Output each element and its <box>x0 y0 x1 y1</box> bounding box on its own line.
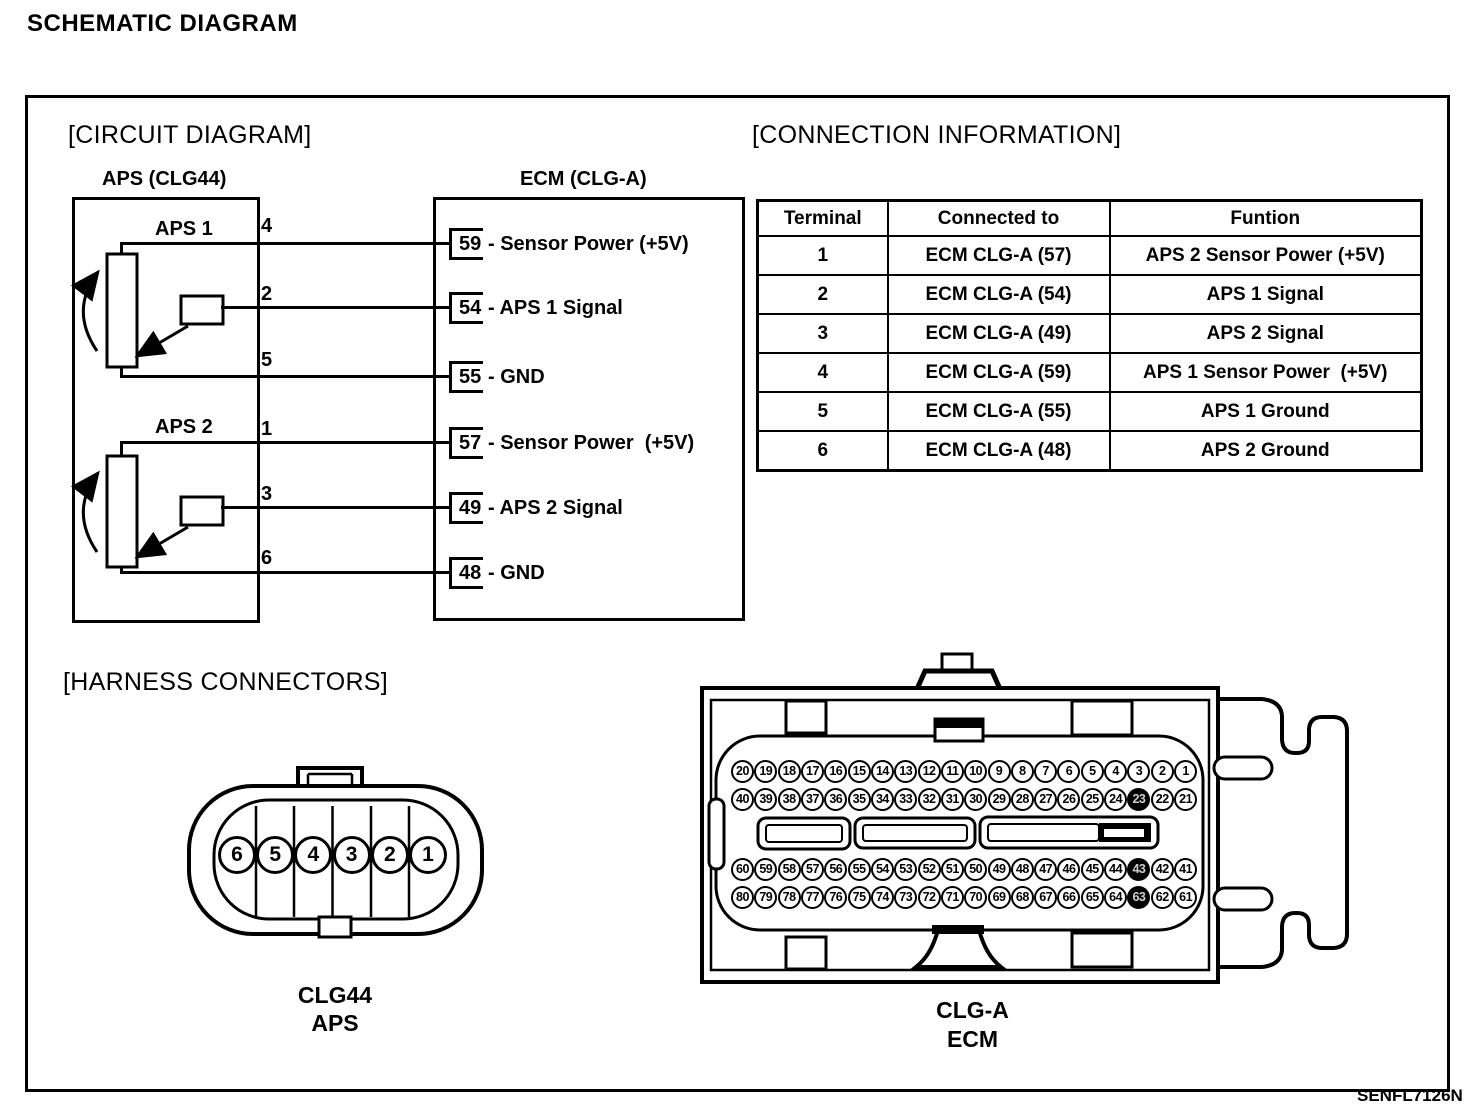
clga-pin-50: 50 <box>964 858 987 881</box>
ecm-pin-bracket: 49 <box>449 492 483 524</box>
col-function: Funtion <box>1110 201 1422 237</box>
clga-pin-34: 34 <box>871 788 894 811</box>
ecm-pin-function: - GND <box>488 557 545 589</box>
wire-aps1-power <box>120 242 452 245</box>
table-row: 6 ECM CLG-A (48) APS 2 Ground <box>758 431 1422 471</box>
clga-pin-39: 39 <box>754 788 777 811</box>
aps-pin-number: 5 <box>261 349 272 372</box>
connection-information-section-title: [CONNECTION INFORMATION] <box>752 121 1121 150</box>
ecm-pin-label: 57 - Sensor Power (+5V) <box>449 427 694 459</box>
clga-pin-7: 7 <box>1034 760 1057 783</box>
cell-function: APS 2 Signal <box>1110 314 1422 353</box>
clga-pin-10: 10 <box>964 760 987 783</box>
clga-pin-16: 16 <box>824 760 847 783</box>
wire-aps2-signal <box>221 506 452 509</box>
clga-pin-12: 12 <box>918 760 941 783</box>
clga-pin-5: 5 <box>1081 760 1104 783</box>
ecm-pin-label: 49 - APS 2 Signal <box>449 492 623 524</box>
aps2-label: APS 2 <box>155 416 213 439</box>
clga-pin-23: 23 <box>1127 788 1150 811</box>
clg44-type: APS <box>262 1010 408 1037</box>
ecm-pin-bracket: 54 <box>449 292 483 324</box>
table-header-row: Terminal Connected to Funtion <box>758 201 1422 237</box>
wire-aps1-ground <box>120 375 452 378</box>
clga-pin-74: 74 <box>871 886 894 909</box>
cell-connected-to: ECM CLG-A (48) <box>888 431 1110 471</box>
clga-type: ECM <box>900 1026 1045 1053</box>
clga-pin-36: 36 <box>824 788 847 811</box>
clga-pin-64: 64 <box>1104 886 1127 909</box>
figure-code: SENFL7126N <box>1357 1086 1463 1106</box>
ecm-pin-function: - APS 1 Signal <box>488 292 623 324</box>
ecm-pin-function: - Sensor Power (+5V) <box>488 427 694 459</box>
cell-function: APS 2 Sensor Power (+5V) <box>1110 236 1422 275</box>
clga-pin-30: 30 <box>964 788 987 811</box>
clga-pin-13: 13 <box>894 760 917 783</box>
cell-terminal: 2 <box>758 275 888 314</box>
clga-pin-55: 55 <box>848 858 871 881</box>
ecm-pin-label: 54 - APS 1 Signal <box>449 292 623 324</box>
clga-pin-8: 8 <box>1011 760 1034 783</box>
clga-pin-29: 29 <box>988 788 1011 811</box>
clga-pin-14: 14 <box>871 760 894 783</box>
cell-terminal: 1 <box>758 236 888 275</box>
ecm-pin-function: - GND <box>488 361 545 393</box>
cell-connected-to: ECM CLG-A (54) <box>888 275 1110 314</box>
cell-terminal: 5 <box>758 392 888 431</box>
cell-function: APS 1 Ground <box>1110 392 1422 431</box>
ecm-pin-bracket: 59 <box>449 228 483 260</box>
clga-pin-19: 19 <box>754 760 777 783</box>
clga-pin-11: 11 <box>941 760 964 783</box>
clga-pin-47: 47 <box>1034 858 1057 881</box>
clga-pin-75: 75 <box>848 886 871 909</box>
aps-pin-number: 4 <box>261 215 272 238</box>
clga-pin-6: 6 <box>1057 760 1080 783</box>
aps-pin-number: 3 <box>261 483 272 506</box>
clga-pin-37: 37 <box>801 788 824 811</box>
clga-pin-9: 9 <box>988 760 1011 783</box>
clga-pin-24: 24 <box>1104 788 1127 811</box>
clga-pin-67: 67 <box>1034 886 1057 909</box>
cell-function: APS 2 Ground <box>1110 431 1422 471</box>
wire-aps2-power <box>120 441 452 444</box>
ecm-pin-label: 55 - GND <box>449 361 545 393</box>
circuit-diagram-section-title: [CIRCUIT DIAGRAM] <box>68 121 312 150</box>
clga-pin-70: 70 <box>964 886 987 909</box>
clga-pin-48: 48 <box>1011 858 1034 881</box>
harness-connectors-section-title: [HARNESS CONNECTORS] <box>63 668 388 697</box>
clga-pin-80: 80 <box>731 886 754 909</box>
clg44-name: CLG44 <box>262 982 408 1009</box>
cell-terminal: 4 <box>758 353 888 392</box>
table-row: 3 ECM CLG-A (49) APS 2 Signal <box>758 314 1422 353</box>
aps-component-box <box>72 197 260 623</box>
clga-pin-15: 15 <box>848 760 871 783</box>
clga-pin-33: 33 <box>894 788 917 811</box>
clga-name: CLG-A <box>900 997 1045 1024</box>
clga-pin-54: 54 <box>871 858 894 881</box>
ecm-pin-label: 48 - GND <box>449 557 545 589</box>
clga-pin-49: 49 <box>988 858 1011 881</box>
cell-connected-to: ECM CLG-A (55) <box>888 392 1110 431</box>
clg44-pin-2: 2 <box>371 836 409 874</box>
page-title: SCHEMATIC DIAGRAM <box>27 10 298 38</box>
clga-pin-21: 21 <box>1174 788 1197 811</box>
col-terminal: Terminal <box>758 201 888 237</box>
cell-function: APS 1 Sensor Power (+5V) <box>1110 353 1422 392</box>
clga-pin-69: 69 <box>988 886 1011 909</box>
clga-pin-79: 79 <box>754 886 777 909</box>
ecm-pin-bracket: 48 <box>449 557 483 589</box>
ecm-pin-function: - Sensor Power (+5V) <box>488 228 689 260</box>
clga-pin-22: 22 <box>1151 788 1174 811</box>
clga-pin-32: 32 <box>918 788 941 811</box>
clga-pin-56: 56 <box>824 858 847 881</box>
clga-pin-62: 62 <box>1151 886 1174 909</box>
clg44-pin-3: 3 <box>333 836 371 874</box>
clga-pin-31: 31 <box>941 788 964 811</box>
clg44-pin-6: 6 <box>218 836 256 874</box>
clga-pin-61: 61 <box>1174 886 1197 909</box>
clga-pin-78: 78 <box>778 886 801 909</box>
clga-pin-53: 53 <box>894 858 917 881</box>
clga-pin-28: 28 <box>1011 788 1034 811</box>
clga-pin-2: 2 <box>1151 760 1174 783</box>
table-row: 5 ECM CLG-A (55) APS 1 Ground <box>758 392 1422 431</box>
cell-connected-to: ECM CLG-A (57) <box>888 236 1110 275</box>
clga-pin-77: 77 <box>801 886 824 909</box>
clga-pin-57: 57 <box>801 858 824 881</box>
clga-pin-42: 42 <box>1151 858 1174 881</box>
clga-pin-1: 1 <box>1174 760 1197 783</box>
clga-pin-40: 40 <box>731 788 754 811</box>
ecm-connector-label: ECM (CLG-A) <box>520 168 647 191</box>
schematic-page: SCHEMATIC DIAGRAM [CIRCUIT DIAGRAM] APS … <box>0 0 1472 1114</box>
table-row: 1 ECM CLG-A (57) APS 2 Sensor Power (+5V… <box>758 236 1422 275</box>
clga-pin-17: 17 <box>801 760 824 783</box>
clga-pin-35: 35 <box>848 788 871 811</box>
clga-pin-20: 20 <box>731 760 754 783</box>
aps-pin-number: 1 <box>261 418 272 441</box>
aps1-label: APS 1 <box>155 218 213 241</box>
clga-pin-3: 3 <box>1127 760 1150 783</box>
ecm-pin-label: 59 - Sensor Power (+5V) <box>449 228 689 260</box>
clga-pin-65: 65 <box>1081 886 1104 909</box>
clga-pin-72: 72 <box>918 886 941 909</box>
clga-pin-58: 58 <box>778 858 801 881</box>
wire-aps2-ground <box>120 571 452 574</box>
clga-pin-41: 41 <box>1174 858 1197 881</box>
ecm-pin-function: - APS 2 Signal <box>488 492 623 524</box>
cell-terminal: 6 <box>758 431 888 471</box>
wire-aps1-signal <box>221 306 452 309</box>
ecm-pin-bracket: 55 <box>449 361 483 393</box>
aps-pin-number: 2 <box>261 283 272 306</box>
clga-pin-52: 52 <box>918 858 941 881</box>
clga-pin-46: 46 <box>1057 858 1080 881</box>
clga-pin-27: 27 <box>1034 788 1057 811</box>
table-row: 4 ECM CLG-A (59) APS 1 Sensor Power (+5V… <box>758 353 1422 392</box>
clg44-pin-1: 1 <box>409 836 447 874</box>
clga-pin-63: 63 <box>1127 886 1150 909</box>
clga-pin-60: 60 <box>731 858 754 881</box>
clga-pin-38: 38 <box>778 788 801 811</box>
ecm-pin-bracket: 57 <box>449 427 483 459</box>
clga-pin-71: 71 <box>941 886 964 909</box>
clga-pin-44: 44 <box>1104 858 1127 881</box>
connection-table: Terminal Connected to Funtion 1 ECM CLG-… <box>756 199 1423 472</box>
clga-pin-73: 73 <box>894 886 917 909</box>
clga-pin-26: 26 <box>1057 788 1080 811</box>
cell-connected-to: ECM CLG-A (59) <box>888 353 1110 392</box>
clga-pin-43: 43 <box>1127 858 1150 881</box>
cell-connected-to: ECM CLG-A (49) <box>888 314 1110 353</box>
col-connected-to: Connected to <box>888 201 1110 237</box>
clga-pin-68: 68 <box>1011 886 1034 909</box>
clga-pin-51: 51 <box>941 858 964 881</box>
clg44-pin-5: 5 <box>256 836 294 874</box>
clga-pin-76: 76 <box>824 886 847 909</box>
clga-pin-4: 4 <box>1104 760 1127 783</box>
clga-pin-45: 45 <box>1081 858 1104 881</box>
aps-pin-number: 6 <box>261 547 272 570</box>
aps-connector-label: APS (CLG44) <box>102 168 226 191</box>
clga-pin-66: 66 <box>1057 886 1080 909</box>
table-row: 2 ECM CLG-A (54) APS 1 Signal <box>758 275 1422 314</box>
clga-pin-59: 59 <box>754 858 777 881</box>
cell-terminal: 3 <box>758 314 888 353</box>
cell-function: APS 1 Signal <box>1110 275 1422 314</box>
clga-pin-18: 18 <box>778 760 801 783</box>
clga-pin-25: 25 <box>1081 788 1104 811</box>
